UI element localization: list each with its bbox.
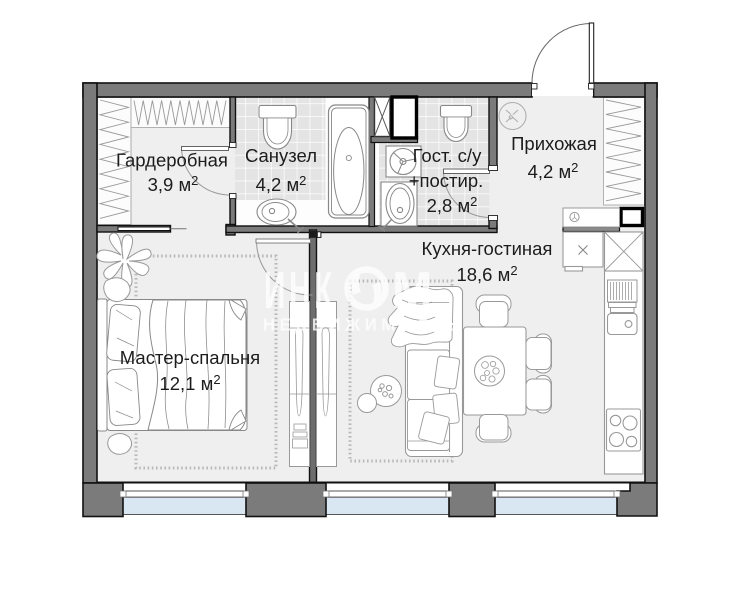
svg-text:Гост. с/у: Гост. с/у (413, 145, 482, 166)
svg-text:Гардеробная: Гардеробная (116, 150, 228, 171)
svg-text:4,2 м2: 4,2 м2 (528, 160, 579, 182)
svg-text:М: М (392, 261, 432, 319)
svg-text:НЕДВИЖИМОСТЬ: НЕДВИЖИМОСТЬ (263, 315, 465, 334)
svg-text:Мастер-спальня: Мастер-спальня (120, 347, 260, 368)
svg-text:2,8 м2: 2,8 м2 (427, 194, 478, 216)
svg-text:+постир.: +постир. (409, 170, 484, 191)
svg-text:3,9 м2: 3,9 м2 (148, 173, 199, 195)
svg-text:Кухня-гостиная: Кухня-гостиная (422, 238, 553, 259)
svg-text:Санузел: Санузел (245, 145, 317, 166)
svg-text:Прихожая: Прихожая (511, 133, 597, 154)
svg-text:ИНК: ИНК (264, 261, 336, 319)
svg-text:18,6 м2: 18,6 м2 (456, 263, 517, 285)
svg-text:12,1 м2: 12,1 м2 (159, 372, 220, 394)
svg-text:4,2 м2: 4,2 м2 (256, 173, 307, 195)
